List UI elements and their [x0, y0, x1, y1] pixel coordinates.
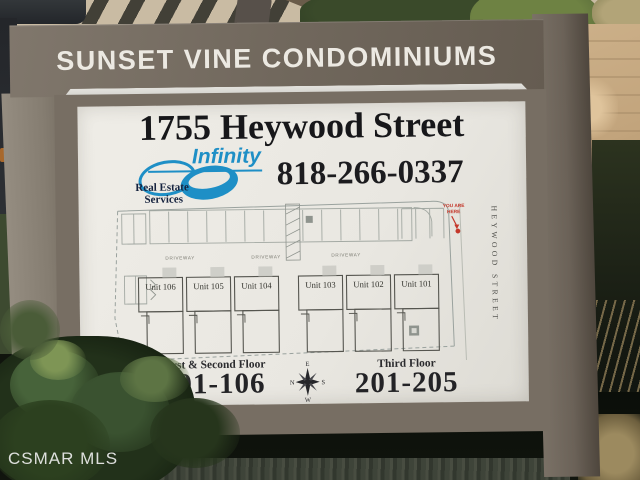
unit-label-104: Unit 104: [241, 280, 272, 290]
driveway-label-1: DRIVEWAY: [165, 255, 195, 260]
logo-subtitle-1: Real Estate: [135, 181, 189, 194]
compass-rose: E N S W: [288, 360, 327, 402]
street-address: 1755 Heywood Street: [78, 102, 524, 149]
unit-label-105: Unit 105: [193, 281, 223, 291]
street-name-label: HEYWOOD STREET: [490, 206, 500, 323]
unit-outlines: [138, 274, 439, 354]
compass-left: N: [290, 380, 295, 387]
compass-star: [296, 368, 320, 396]
sign-title: SUNSET VINE CONDOMINIUMS: [10, 40, 544, 78]
unit-label-103: Unit 103: [305, 280, 335, 290]
bush-blob: [0, 300, 60, 360]
unit-label-101: Unit 101: [401, 278, 431, 288]
bush-highlight: [120, 356, 190, 402]
floor-range-upper: 201-205: [332, 369, 482, 397]
you-are-here-marker: YOU ARE HERE: [443, 203, 466, 234]
logo-name: Infinity: [192, 144, 261, 169]
unit-label-102: Unit 102: [353, 279, 383, 289]
site-map: DRIVEWAY DRIVEWAY DRIVEWAY: [107, 194, 505, 367]
floor-group-upper: Third Floor 201-205: [331, 357, 481, 397]
svg-text:YOU ARE: YOU ARE: [443, 203, 466, 209]
compass-right: S: [321, 379, 325, 386]
phone-number: 818-266-0337: [257, 154, 483, 194]
bush-blob: [150, 398, 240, 468]
hatched-strip: [286, 204, 301, 260]
svg-text:HERE: HERE: [447, 209, 461, 215]
watermark: CSMAR MLS: [8, 449, 118, 469]
driveway-label-3: DRIVEWAY: [331, 252, 361, 257]
balcony-shading: [162, 264, 432, 277]
compass-bottom: W: [305, 397, 312, 402]
unit-label-106: Unit 106: [145, 282, 176, 292]
compass-top: E: [305, 361, 309, 368]
driveway-label-2: DRIVEWAY: [251, 254, 281, 259]
photo-scene: SUNSET VINE CONDOMINIUMS 1755 Heywood St…: [0, 0, 640, 480]
